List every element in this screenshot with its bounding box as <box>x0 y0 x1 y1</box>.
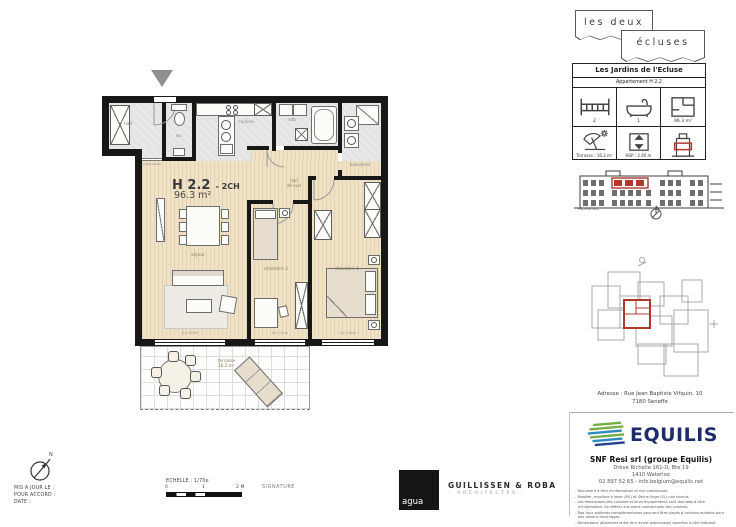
entry-arrow-icon <box>151 70 173 87</box>
signature-label: SIGNATURE <box>262 485 295 490</box>
height-value: HSP : 2.60 m <box>626 153 652 158</box>
window-note: A.h 75cm <box>256 332 304 336</box>
bathrooms-cell: 1 <box>617 88 661 127</box>
agua-logo-text: agua <box>402 497 423 507</box>
dining-chair <box>221 235 229 245</box>
wardrobe <box>295 282 308 329</box>
architects-subtitle: - ARCHITECTES - <box>449 491 526 496</box>
wall <box>308 176 312 346</box>
apartment-subtitle: Appartement H 2.2 <box>573 78 705 88</box>
room-label-chambre1: chambre 1 <box>318 267 376 272</box>
building-locator-cell <box>661 127 705 160</box>
window <box>322 339 374 346</box>
room-label-buanderie: buanderie <box>338 163 382 168</box>
parasol-icon <box>580 130 610 152</box>
area-cell: 96.3 m² <box>661 88 705 127</box>
glass-door <box>142 158 162 161</box>
room-label-hall-de-nuit: hall de nuit <box>274 179 314 188</box>
bed-icon <box>578 96 612 118</box>
hall-de-nuit-line2: de nuit <box>274 184 314 189</box>
window-note: A.h 90cm <box>322 332 374 336</box>
terrace-chair <box>151 367 162 378</box>
armchair <box>219 295 238 315</box>
wc-toilet <box>174 112 185 126</box>
area-plan-icon <box>670 96 696 118</box>
agua-logo: agua <box>399 470 439 510</box>
scale-tick-0: 0 <box>165 485 168 490</box>
wc-sink <box>173 148 185 156</box>
wall <box>247 200 251 346</box>
bedrooms-count: 2 <box>593 119 596 124</box>
room-label-wc: wc <box>166 134 192 139</box>
divider-horizontal <box>569 412 734 413</box>
bathroom-sink <box>293 104 307 116</box>
legal-note: Dimensions (distances entre mur avant pl… <box>575 521 731 526</box>
wardrobe <box>364 182 381 210</box>
terrace-chair <box>168 351 179 362</box>
terrace-chair <box>190 371 201 382</box>
terrace-label-line2: 16.2 m² <box>218 364 264 369</box>
sink-bowl <box>221 132 231 142</box>
wc-cistern <box>171 104 187 111</box>
date-label: DATE : <box>14 500 31 505</box>
pillow <box>365 271 376 292</box>
equilis-logo-stripes-icon <box>584 419 628 451</box>
building-icon <box>670 132 696 158</box>
hob-burner <box>226 110 231 115</box>
wall <box>338 103 342 153</box>
developer-street: Drève Richelle 161-D, Bte 19 <box>572 465 730 471</box>
legal-notes: Document à titre d'information et non co… <box>575 489 731 527</box>
north-label: N <box>49 452 53 458</box>
ceiling-height-icon <box>627 132 651 152</box>
window <box>155 339 225 346</box>
wardrobe <box>314 210 332 240</box>
apartment-type: - 2CH <box>216 182 240 191</box>
wall <box>162 103 166 161</box>
wardrobe <box>364 209 381 238</box>
bathroom-sink <box>279 104 293 116</box>
desk <box>254 298 278 328</box>
address-line2: 7180 Seneffe <box>572 399 728 405</box>
wall <box>162 157 196 161</box>
room-label-chambre2: chambre 2 <box>250 267 302 272</box>
lamp <box>371 322 377 328</box>
apartment-info-card: Les Jardins de l'Ecluse Appartement H 2.… <box>572 63 706 160</box>
room-label-hall: hall <box>110 122 146 127</box>
terrace-chair <box>159 385 170 396</box>
room-label-sdb: sdb <box>280 118 304 123</box>
wall <box>102 96 109 156</box>
glass-door-label: porte vitrée <box>136 162 168 166</box>
night-hall-floor <box>251 150 338 161</box>
updated-label: MIS A JOUR LE : <box>14 486 54 491</box>
small-compass-icon <box>648 204 664 222</box>
terrace-chair <box>180 388 191 399</box>
project-title: Les Jardins de l'Ecluse <box>573 64 705 78</box>
terrace-cell: Terrasse : 16.2 m² <box>573 127 617 160</box>
legal-note: Les dimensions des cuisines et leurs équ… <box>575 500 731 509</box>
legal-note: Document à titre d'information et non co… <box>575 489 731 494</box>
pillow <box>255 210 276 219</box>
dryer-drum <box>347 136 356 145</box>
laundry-closet <box>356 105 379 125</box>
window <box>255 339 305 346</box>
wall <box>247 146 269 150</box>
developer-contact: 02 897 52 65 - info.belgium@equilis.net <box>572 479 730 485</box>
coffee-table <box>186 299 212 313</box>
room-label-cuisine: cuisine <box>226 120 266 125</box>
entry-door <box>154 96 176 103</box>
wall <box>284 146 342 150</box>
dining-chair <box>221 209 229 219</box>
terrace-label: terrasse 16.2 m² <box>218 359 264 369</box>
developer-company: SNF Resi srl (groupe Equilis) <box>572 455 730 464</box>
lamp <box>371 257 377 263</box>
architects-name: GUILLISSEN & ROBA <box>448 481 557 490</box>
bathtub-icon <box>623 96 655 118</box>
sofa <box>172 270 224 286</box>
floor-plan: porte vitrée <box>98 58 394 420</box>
terrace-chair <box>185 355 196 366</box>
height-cell: HSP : 2.60 m <box>617 127 661 160</box>
scale-label: ECHELLE : 1/70e <box>166 479 209 484</box>
scale-bar <box>166 492 242 497</box>
site-plan <box>578 250 726 388</box>
tv-unit <box>156 198 165 242</box>
bed-fold <box>327 296 347 317</box>
address-line1: Adresse : Rue Jean Baptiste Vifquin, 10 <box>572 391 728 397</box>
facade-label: Façade Est <box>578 206 598 211</box>
window-note: A.h 60cm <box>168 332 212 336</box>
oven <box>220 144 233 154</box>
bathrooms-count: 1 <box>637 119 640 124</box>
equilis-logo-text: EQUILIS <box>630 424 718 446</box>
approval-label: POUR ACCORD : <box>14 493 55 498</box>
scale-tick-1: 1 <box>202 485 205 490</box>
dining-chair <box>221 222 229 232</box>
dining-table <box>186 206 220 246</box>
terrace-value: Terrasse : 16.2 m² <box>576 153 612 158</box>
plan-sheet: { "plan": { "title": "H 2.2", "title_suf… <box>0 0 736 520</box>
wall <box>135 149 142 346</box>
legal-note: Des faux-plafonds complémentaires pourro… <box>575 511 731 520</box>
fridge <box>254 103 272 116</box>
scale-tick-2: 2 M <box>236 485 245 490</box>
legal-note: Mobilier, machine à laver (ML) et Sèche-… <box>575 495 731 500</box>
wall <box>381 96 388 346</box>
lamp <box>282 210 288 216</box>
developer-city: 1410 Waterloo <box>572 472 730 478</box>
area-value: 96.3 m² <box>674 119 692 124</box>
laundry-basket <box>295 128 308 141</box>
wall <box>272 103 276 151</box>
apartment-area: 96.3 m² <box>174 190 211 201</box>
brand-line2: écluses <box>622 31 704 63</box>
wall <box>102 96 387 103</box>
bathtub-inner <box>314 109 334 141</box>
pillow <box>365 294 376 315</box>
info-grid: 2 1 96.3 m² Terrasse : 16.2 m <box>573 88 705 160</box>
bedrooms-cell: 2 <box>573 88 617 127</box>
room-label-sejour: séjour <box>176 253 220 258</box>
hob-burner <box>233 110 238 115</box>
divider-vertical <box>569 412 570 516</box>
washing-machine-drum <box>347 119 356 128</box>
wall <box>334 176 388 180</box>
brand-logo-box2: écluses <box>621 30 705 64</box>
